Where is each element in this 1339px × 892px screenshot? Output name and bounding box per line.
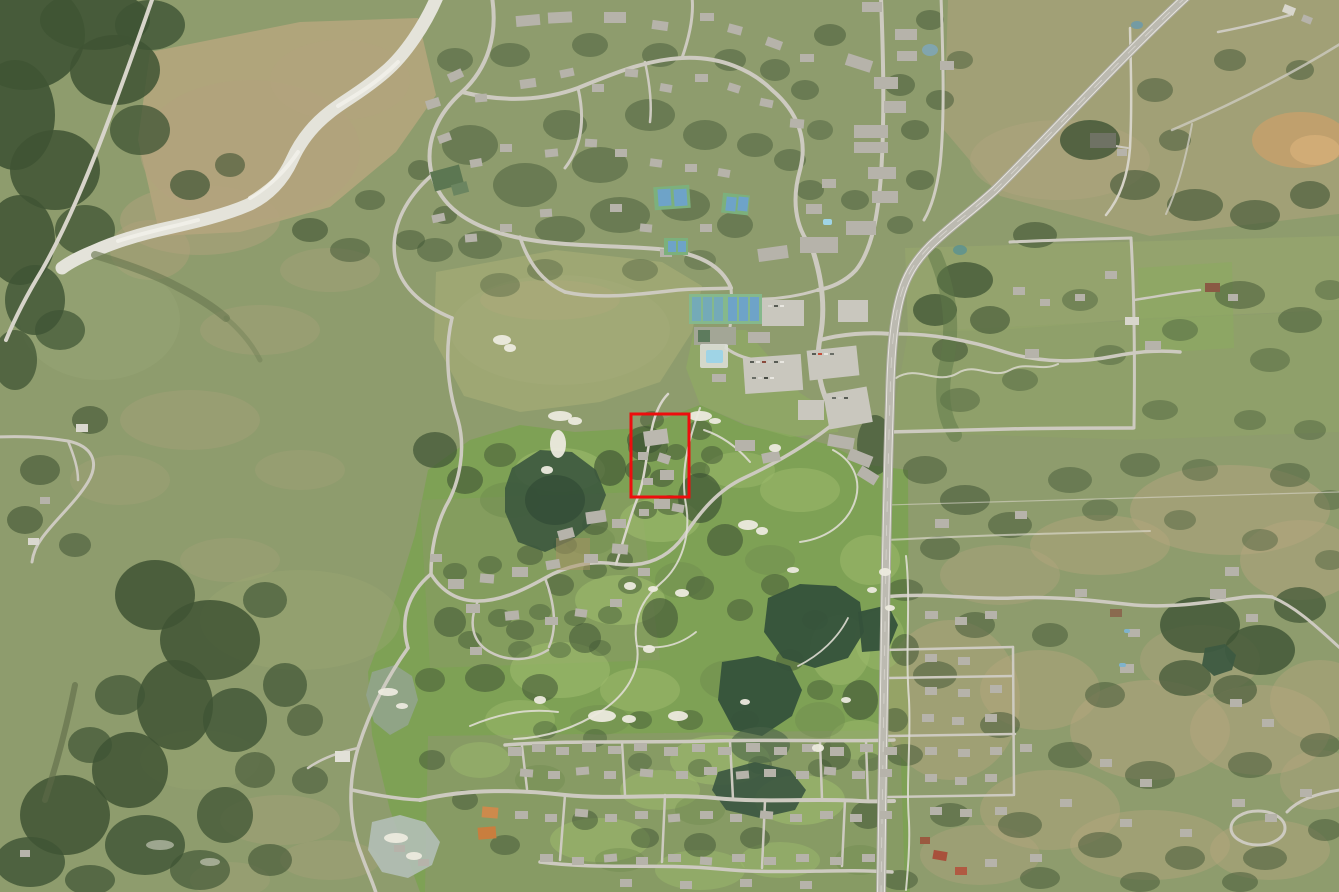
aerial-photo-viewport [0, 0, 1339, 892]
aerial-photo [0, 0, 1339, 892]
